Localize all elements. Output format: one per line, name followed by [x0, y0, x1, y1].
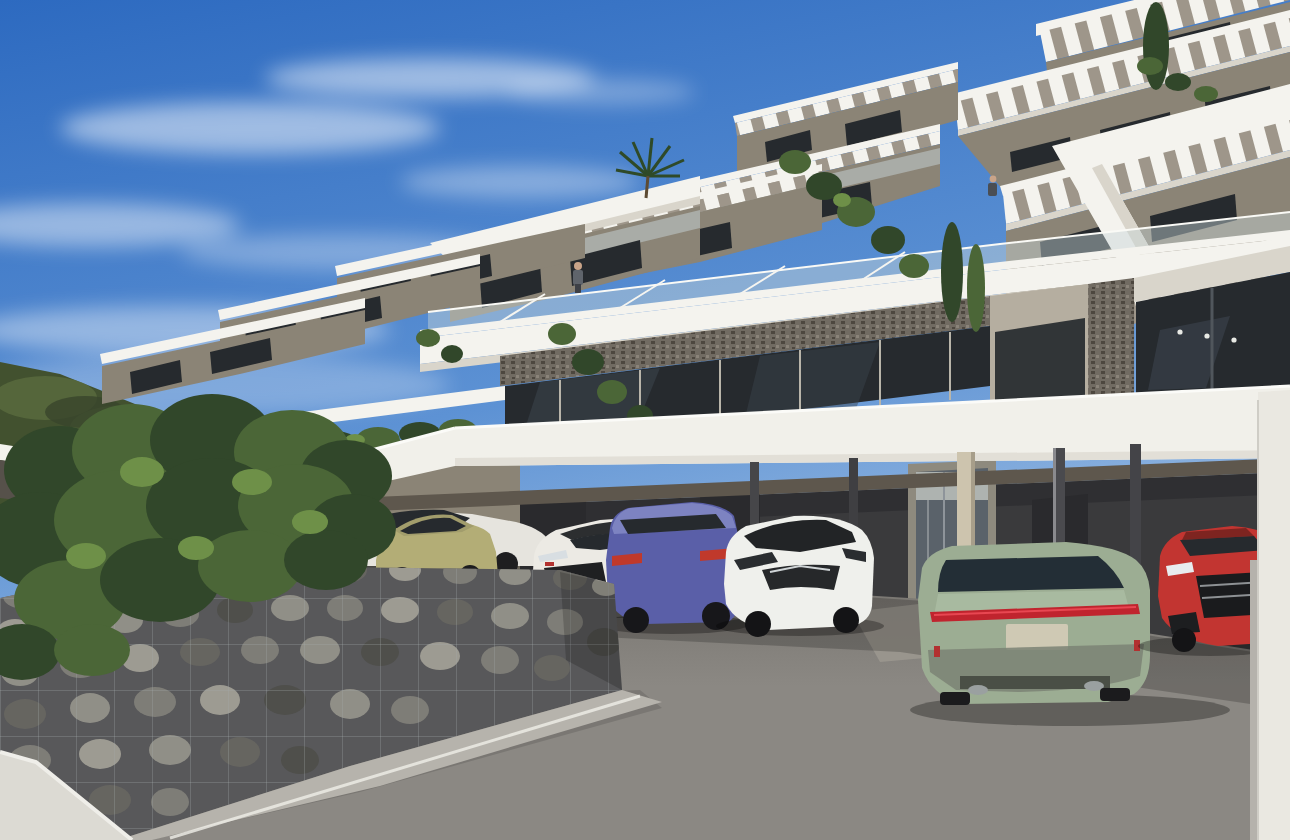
render-canvas	[0, 0, 1290, 840]
car-white-hatchback	[716, 516, 884, 637]
architectural-render	[0, 0, 1290, 840]
car-rear-window	[938, 556, 1124, 592]
column	[750, 462, 759, 534]
car-grille	[762, 565, 840, 590]
car-license-plate	[1006, 624, 1068, 650]
